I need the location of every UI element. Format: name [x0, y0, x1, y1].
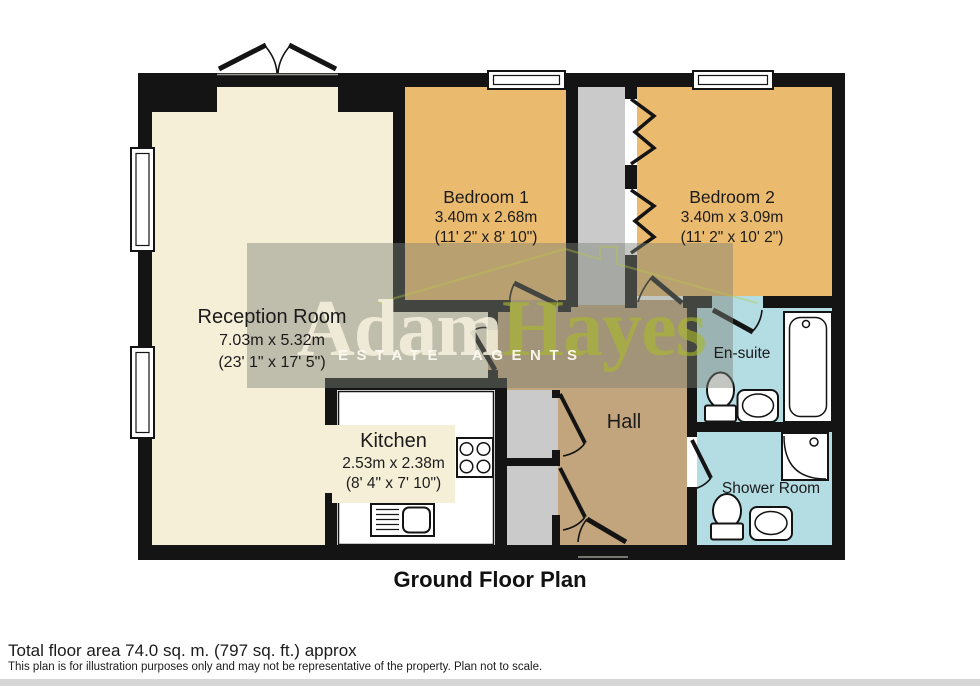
reception-label: Reception Room 7.03m x 5.32m (23' 1" x 1… [198, 304, 347, 374]
plan-title: Ground Floor Plan [0, 567, 980, 593]
room-dim-metric: 7.03m x 5.32m [198, 330, 347, 352]
room-dim-imperial: (11' 2" x 8' 10") [435, 228, 538, 248]
room-dim-imperial: (23' 1" x 17' 5") [198, 352, 347, 374]
room-dim-imperial: (11' 2" x 10' 2") [681, 228, 784, 248]
shower-room-label: Shower Room [722, 480, 820, 498]
bedroom2-label: Bedroom 2 3.40m x 3.09m (11' 2" x 10' 2"… [681, 186, 784, 248]
room-name: Reception Room [198, 304, 347, 330]
bottom-border-strip [0, 679, 980, 686]
room-dim-metric: 3.40m x 2.68m [435, 208, 538, 228]
hall-label: Hall [607, 411, 641, 434]
bedroom1-label: Bedroom 1 3.40m x 2.68m (11' 2" x 8' 10"… [435, 186, 538, 248]
ensuite-label: En-suite [714, 345, 771, 363]
room-dim-imperial: (8' 4" x 7' 10") [332, 474, 455, 494]
room-dim-metric: 2.53m x 2.38m [332, 454, 455, 474]
room-dim-metric: 3.40m x 3.09m [681, 208, 784, 228]
disclaimer-text: This plan is for illustration purposes o… [8, 661, 542, 673]
floor-plan-page: AdamHayes ESTATE AGENTS Reception Room 7… [0, 0, 980, 686]
total-floor-area-text: Total floor area 74.0 sq. m. (797 sq. ft… [8, 641, 357, 661]
room-name: Bedroom 2 [681, 186, 784, 208]
watermark-tagline: ESTATE AGENTS [338, 347, 586, 364]
kitchen-label: Kitchen 2.53m x 2.38m (8' 4" x 7' 10") [332, 425, 455, 503]
room-name: Bedroom 1 [435, 186, 538, 208]
room-name: Kitchen [332, 425, 455, 454]
